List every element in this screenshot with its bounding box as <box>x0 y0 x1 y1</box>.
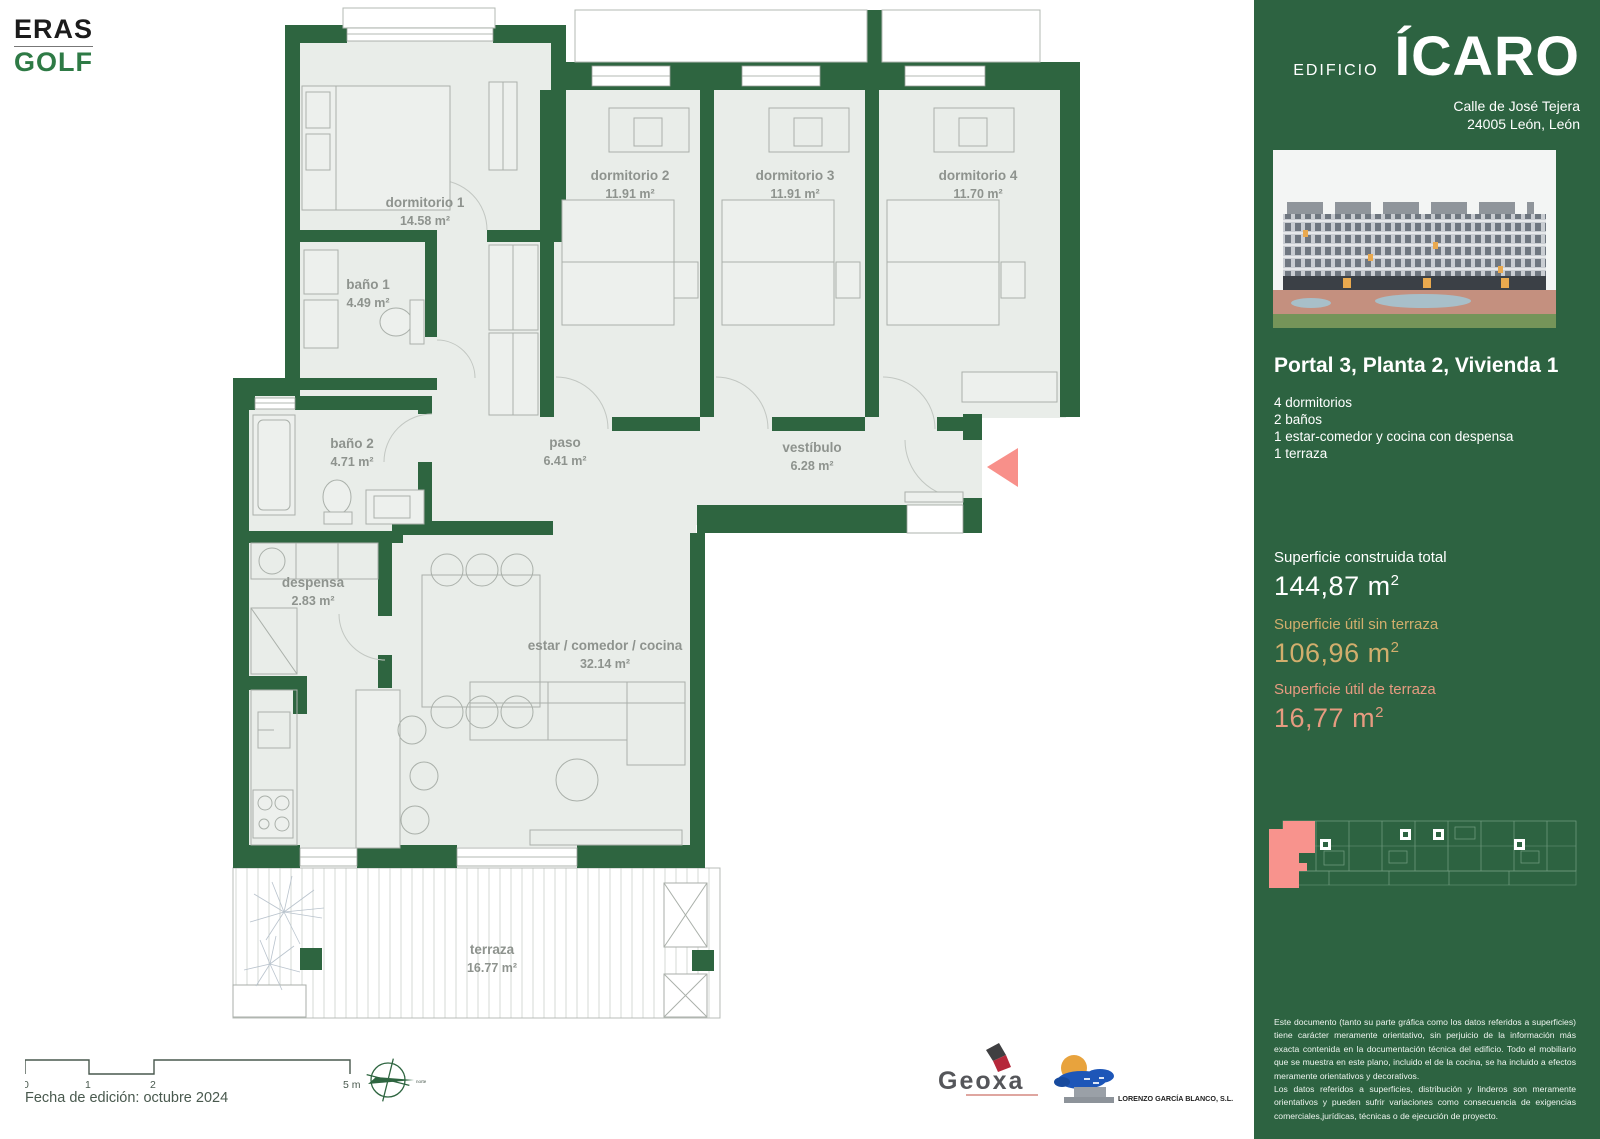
geoxa-logo: Geoxa <box>936 1040 1046 1102</box>
highlighted-unit <box>1269 821 1315 888</box>
edificio-label: EDIFICIO <box>1293 62 1378 80</box>
room-area: 6.41 m² <box>543 454 586 468</box>
area-usable-terrace: Superficie útil de terraza 16,77 m2 <box>1274 681 1436 734</box>
unit-features: 4 dormitorios 2 baños 1 estar-comedor y … <box>1274 394 1513 462</box>
disclaimer-paragraph: Este documento (tanto su parte gráfica c… <box>1274 1016 1576 1083</box>
room-label: baño 1 <box>346 277 390 292</box>
feature-item: 1 estar-comedor y cocina con despensa <box>1274 428 1513 445</box>
scale-bar: 0 1 2 5 m <box>25 1052 375 1094</box>
room-area: 11.91 m² <box>605 187 654 201</box>
lgb-wordmark: LORENZO GARCÍA BLANCO, S.L. <box>1118 1094 1233 1103</box>
key-plan <box>1269 813 1581 891</box>
floor-plan-drawing: dormitorio 1 14.58 m² baño 1 4.49 m² dor… <box>0 0 1232 1139</box>
room-area: 14.58 m² <box>400 214 450 228</box>
geoxa-wordmark: Geoxa <box>938 1067 1024 1095</box>
room-label: paso <box>549 435 581 450</box>
building-render-image <box>1273 150 1556 328</box>
room-area: 11.91 m² <box>770 187 819 201</box>
room-label: vestíbulo <box>782 440 841 455</box>
room-area: 4.71 m² <box>330 455 373 469</box>
address-line-2: 24005 León, León <box>1453 115 1580 133</box>
legal-disclaimer: Este documento (tanto su parte gráfica c… <box>1274 1016 1576 1123</box>
lorenzo-garcia-blanco-logo: LORENZO GARCÍA BLANCO, S.L. <box>1046 1040 1236 1105</box>
building-address: Calle de José Tejera 24005 León, León <box>1453 97 1580 133</box>
room-label: dormitorio 3 <box>756 168 835 183</box>
room-area: 16.77 m² <box>467 961 517 975</box>
room-area: 6.28 m² <box>790 459 833 473</box>
compass-label: norte <box>416 1079 427 1084</box>
room-label: dormitorio 1 <box>386 195 465 210</box>
stair-cores <box>1320 829 1525 850</box>
address-line-1: Calle de José Tejera <box>1453 97 1580 115</box>
area-value: 144,87 m2 <box>1274 571 1447 602</box>
building-title: EDIFICIO ÍCARO <box>1293 28 1580 84</box>
info-sidebar: EDIFICIO ÍCARO Calle de José Tejera 2400… <box>1254 0 1600 1139</box>
area-value: 16,77 m2 <box>1274 703 1436 734</box>
building-name: ÍCARO <box>1395 28 1580 84</box>
room-label: baño 2 <box>330 436 374 451</box>
disclaimer-paragraph: Los datos referidos a superficies, distr… <box>1274 1083 1576 1123</box>
room-label: estar / comedor / cocina <box>528 638 683 653</box>
room-label: dormitorio 2 <box>591 168 670 183</box>
area-label: Superficie útil sin terraza <box>1274 616 1438 633</box>
room-label: despensa <box>282 575 345 590</box>
feature-item: 1 terraza <box>1274 445 1513 462</box>
area-value: 106,96 m2 <box>1274 638 1438 669</box>
area-label: Superficie construida total <box>1274 549 1447 566</box>
floorplan-page: ERAS GOLF <box>0 0 1600 1139</box>
room-label: terraza <box>470 942 515 957</box>
feature-item: 2 baños <box>1274 411 1513 428</box>
area-label: Superficie útil de terraza <box>1274 681 1436 698</box>
room-area: 11.70 m² <box>953 187 1002 201</box>
room-area: 4.49 m² <box>346 296 389 310</box>
room-label: dormitorio 4 <box>939 168 1018 183</box>
compass-icon: norte <box>358 1050 438 1114</box>
edition-date: Fecha de edición: octubre 2024 <box>25 1090 228 1106</box>
unit-title: Portal 3, Planta 2, Vivienda 1 <box>1274 354 1558 378</box>
area-usable-no-terrace: Superficie útil sin terraza 106,96 m2 <box>1274 616 1438 669</box>
room-area: 32.14 m² <box>580 657 630 671</box>
feature-item: 4 dormitorios <box>1274 394 1513 411</box>
entrance-arrow-icon <box>987 448 1018 487</box>
area-built-total: Superficie construida total 144,87 m2 <box>1274 549 1447 602</box>
room-area: 2.83 m² <box>291 594 334 608</box>
